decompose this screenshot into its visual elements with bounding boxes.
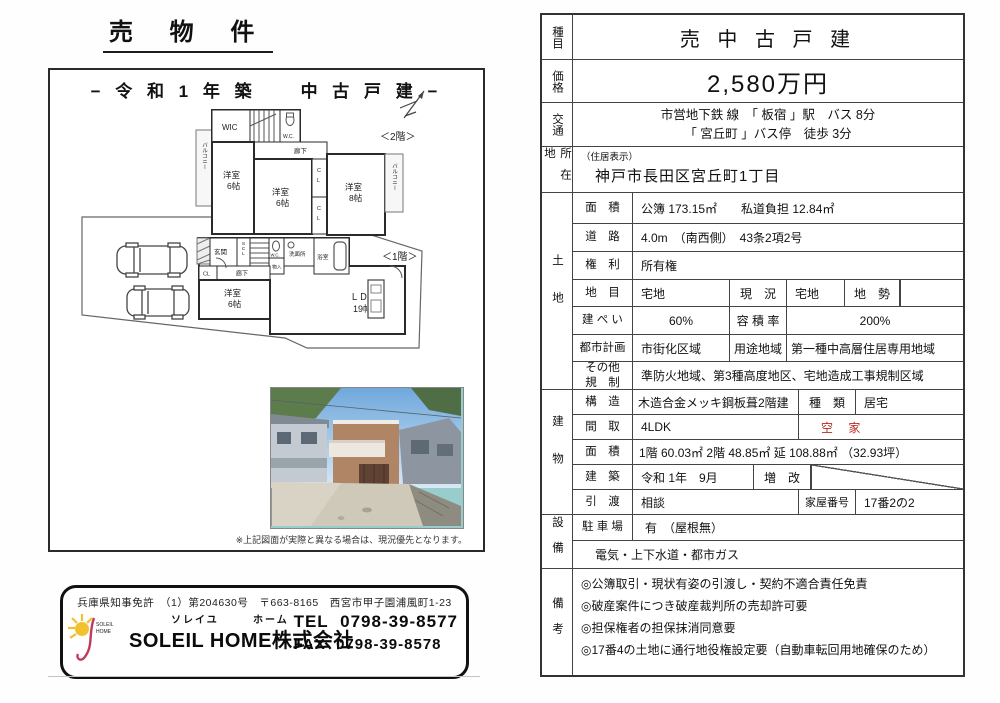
row-land-category: 地 目 宅地 現 況 宅地 地 勢	[573, 280, 963, 307]
zoning-label: 用途地域	[729, 335, 787, 361]
access-line1: 市営地下鉄 線 「 板宿 」駅 バス 8分	[661, 106, 876, 124]
rights-value: 所有権	[633, 252, 963, 279]
price-value: 2,580万円	[573, 60, 963, 102]
row-built-year: 建 築 令和 1年 9月 増 改	[573, 465, 963, 490]
address-text: 神戸市長田区宮丘町1丁目	[581, 165, 780, 186]
closet-label: L	[317, 216, 320, 222]
terrain-label: 地 勢	[844, 280, 900, 306]
storage-label: 物入	[272, 264, 282, 271]
sub-label: 建 ぺ い	[573, 307, 633, 334]
row-rights: 権 利 所有権	[573, 252, 963, 280]
utilities-value: 電気・上下水道・都市ガス	[573, 541, 963, 568]
flyer-page: 売 物 件 − 令 和 1 年 築 中 古 戸 建 − ＜2階＞	[0, 0, 1000, 703]
section-facilities: 設備 駐 車 場 有 （屋根無） 電気・上下水道・都市ガス	[542, 515, 963, 569]
floorplan-box: − 令 和 1 年 築 中 古 戸 建 − ＜2階＞	[48, 68, 485, 552]
sub-label-line: その他	[585, 361, 620, 375]
row-other-regulations: その他 規 制 準防火地域、第3種高度地区、宅地造成工事規制区域	[573, 362, 963, 389]
floor1-label: ＜1階＞	[382, 251, 418, 263]
diagonal-strikethrough	[811, 465, 963, 489]
sub-label: 面 積	[573, 193, 633, 223]
layout-value: 4LDK	[633, 415, 798, 439]
sub-label: 権 利	[573, 252, 633, 279]
wic-label: WIC	[222, 123, 238, 132]
row-structure: 構 造 木造合金メッキ鋼板葺2階建 種 類 居宅	[573, 390, 963, 415]
spec-table: 種目 売 中 古 戸 建 価格 2,580万円 交通 市営地下鉄 線 「 板宿 …	[540, 13, 965, 677]
senmen-label: 洗面所	[289, 250, 306, 258]
land-area-value: 公簿 173.15㎡ 私道負担 12.84㎡	[633, 193, 963, 223]
sub-label: 地 目	[573, 280, 633, 306]
wc-label: W.C.	[271, 253, 280, 258]
other-regulations-value: 準防火地域、第3種高度地区、宅地造成工事規制区域	[633, 362, 963, 389]
city-planning-value: 市街化区域	[633, 335, 729, 361]
balcony-label: バルコニー	[201, 142, 208, 170]
room-label: 洋室	[223, 170, 241, 180]
kitchen-counter-icon	[368, 280, 384, 318]
sub-label: 面 積	[573, 440, 633, 464]
structure-value: 木造合金メッキ鋼板葺2階建	[633, 390, 798, 414]
sub-label: その他 規 制	[573, 362, 633, 389]
section-building: 建物 構 造 木造合金メッキ鋼板葺2階建 種 類 居宅 間 取 4LDK 空 家…	[542, 390, 963, 515]
fax-number: 0798-39-8578	[336, 636, 441, 653]
row-utilities: 電気・上下水道・都市ガス	[573, 541, 963, 568]
section-remarks: 備考 ◎公簿取引・現状有姿の引渡し・契約不適合責任免責 ◎破産案件につき破産裁判…	[542, 569, 963, 675]
sub-label: 引 渡	[573, 490, 633, 514]
handover-value: 相談	[633, 490, 798, 514]
room-size: 6帖	[227, 181, 241, 191]
floor-ratio-label: 容 積 率	[729, 307, 787, 334]
row-land-area: 面 積 公簿 173.15㎡ 私道負担 12.84㎡	[573, 193, 963, 224]
vacancy-status: 空 家	[798, 415, 963, 439]
road-value: 4.0m （南西側） 43条2項2号	[633, 224, 963, 251]
north-arrow-icon	[400, 91, 424, 118]
floorplan-1f: 玄関 SCL W.C. 物入 洗面所	[197, 238, 405, 334]
car-icon	[117, 243, 187, 277]
section-header: 土地	[542, 193, 573, 389]
category-value: 売 中 古 戸 建	[573, 15, 963, 59]
floorplan-2f: バルコニー WIC W.C.	[196, 110, 403, 235]
hall-label: 廊下	[294, 146, 308, 155]
row-road: 道 路 4.0m （南西側） 43条2項2号	[573, 224, 963, 252]
row-category: 種目 売 中 古 戸 建	[542, 15, 963, 60]
floor-ratio-value: 200%	[787, 307, 963, 334]
logo-text: HOME	[96, 629, 112, 635]
bathtub-icon	[334, 242, 346, 270]
sub-label: 駐 車 場	[573, 515, 633, 540]
toilet-icon	[273, 241, 280, 251]
row-header: 種目	[542, 15, 573, 59]
building-type-value: 居宅	[856, 390, 963, 414]
closet-label: C	[317, 206, 321, 212]
renovation-label: 増 改	[753, 465, 811, 489]
tel-label: TEL	[294, 612, 329, 631]
coverage-value: 60%	[633, 307, 729, 334]
company-logo-icon: SOLEIL HOME	[68, 612, 128, 668]
row-header: 価格	[542, 60, 573, 102]
sub-label: 建 築	[573, 465, 633, 489]
section-header: 設備	[542, 515, 573, 568]
room-size: 8帖	[349, 193, 363, 203]
zoning-value: 第一種中高層住居専用地域	[787, 335, 963, 361]
page-title: 売 物 件	[103, 12, 273, 53]
building-area-value: 1階 60.03㎡ 2階 48.85㎡ 延 108.88㎡ （32.93坪）	[633, 440, 963, 464]
remark-line: ◎17番4の土地に通行地役権設定要（自動車転回用地確保のため）	[581, 641, 955, 658]
closet-label: L	[317, 178, 320, 184]
genkan-label: 玄関	[214, 247, 227, 256]
house-number-value: 17番2の2	[856, 490, 963, 514]
toilet-icon	[286, 113, 294, 126]
logo-text: SOLEIL	[96, 622, 114, 628]
contact-block: TEL 0798-39-8577 FAX 0798-39-8578	[294, 612, 458, 653]
row-access: 交通 市営地下鉄 線 「 板宿 」駅 バス 8分 「 宮丘町 」バス停 徒歩 3…	[542, 103, 963, 147]
row-header: 所在地	[542, 147, 573, 192]
remark-line: ◎担保権者の担保抹消同意要	[581, 619, 955, 636]
row-building-area: 面 積 1階 60.03㎡ 2階 48.85㎡ 延 108.88㎡ （32.93…	[573, 440, 963, 465]
balcony-label: バルコニー	[391, 163, 398, 191]
house-number-label: 家屋番号	[798, 490, 856, 514]
terrain-value	[900, 280, 963, 306]
built-year-value: 令和 1年 9月	[633, 465, 753, 489]
company-box: 兵庫県知事免許 （1）第204630号 〒663-8165 西宮市甲子園浦風町1…	[60, 585, 469, 679]
scl-label: SCL	[241, 241, 246, 257]
plan-disclaimer: ※上記図面が実際と異なる場合は、現況優先となります。	[236, 533, 467, 546]
room-size: 6帖	[276, 198, 290, 208]
row-address: 所在地 （住居表示） 神戸市長田区宮丘町1丁目	[542, 147, 963, 193]
row-header: 交通	[542, 103, 573, 146]
entrance-hatch	[197, 238, 210, 264]
sink-icon	[288, 242, 294, 248]
row-price: 価格 2,580万円	[542, 60, 963, 103]
parking-value: 有 （屋根無）	[633, 515, 963, 540]
closet-label: C	[317, 168, 321, 174]
row-parking: 駐 車 場 有 （屋根無）	[573, 515, 963, 541]
wc-label: W.C.	[283, 134, 294, 140]
current-status-value: 宅地	[787, 280, 844, 306]
bath-label: 浴室	[317, 253, 329, 261]
access-line2: 「 宮丘町 」バス停 徒歩 3分	[684, 125, 851, 143]
room-label: 洋室	[272, 187, 290, 197]
access-value: 市営地下鉄 線 「 板宿 」駅 バス 8分 「 宮丘町 」バス停 徒歩 3分	[573, 103, 963, 146]
row-coverage: 建 ぺ い 60% 容 積 率 200%	[573, 307, 963, 335]
sub-label-line: 規 制	[585, 376, 620, 390]
section-land: 土地 面 積 公簿 173.15㎡ 私道負担 12.84㎡ 道 路 4.0m （…	[542, 193, 963, 390]
room-label: 洋室	[345, 182, 363, 192]
stairs-icon	[250, 110, 280, 142]
remarks-list: ◎公簿取引・現状有姿の引渡し・契約不適合責任免責 ◎破産案件につき破産裁判所の売…	[573, 569, 963, 675]
page-edge-line	[48, 676, 480, 677]
section-header: 建物	[542, 390, 573, 514]
sub-label: 構 造	[573, 390, 633, 414]
fax-label: FAX	[294, 636, 326, 653]
building-type-label: 種 類	[798, 390, 856, 414]
closet-label: CL	[203, 272, 210, 278]
car-icon	[127, 286, 189, 319]
hall-label: 廊下	[236, 270, 248, 278]
room-size: 6帖	[228, 299, 242, 309]
land-category-value: 宅地	[633, 280, 729, 306]
address-value: （住居表示） 神戸市長田区宮丘町1丁目	[573, 147, 963, 192]
section-header: 備考	[542, 569, 573, 675]
license-text: 兵庫県知事免許 （1）第204630号 〒663-8165 西宮市甲子園浦風町1…	[63, 595, 466, 610]
address-note: （住居表示）	[581, 153, 638, 163]
row-layout: 間 取 4LDK 空 家	[573, 415, 963, 440]
current-status-label: 現 況	[729, 280, 787, 306]
row-city-planning: 都市計画 市街化区域 用途地域 第一種中高層住居専用地域	[573, 335, 963, 362]
remark-line: ◎破産案件につき破産裁判所の売却許可要	[581, 597, 955, 614]
property-photo	[270, 387, 464, 529]
floor2-label: ＜2階＞	[380, 131, 416, 143]
remark-line: ◎公簿取引・現状有姿の引渡し・契約不適合責任免責	[581, 575, 955, 592]
row-handover: 引 渡 相談 家屋番号 17番2の2	[573, 490, 963, 514]
sub-label: 間 取	[573, 415, 633, 439]
sub-label: 道 路	[573, 224, 633, 251]
tel-number: 0798-39-8577	[340, 612, 458, 631]
room-label: 洋室	[224, 288, 242, 298]
sub-label: 都市計画	[573, 335, 633, 361]
